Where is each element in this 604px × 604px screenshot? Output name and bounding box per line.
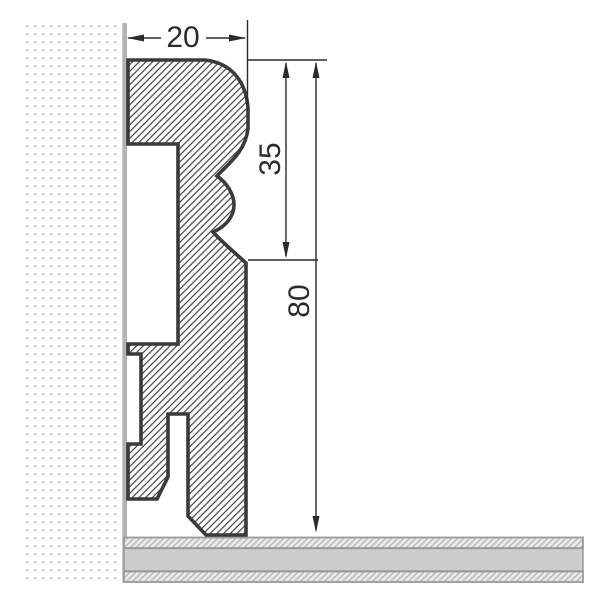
dim-arrow-down-35 [283, 242, 290, 259]
floor-middle-layer [124, 549, 583, 572]
skirting-board-cross-section [128, 60, 248, 535]
drawing-canvas: 20 35 80 [0, 0, 604, 604]
dimension-total-height: 80 [283, 62, 320, 533]
dimension-label-upper-height: 35 [254, 142, 287, 175]
dim-arrow-up-80 [313, 62, 320, 79]
dimension-top-width: 20 [127, 21, 246, 54]
floor-top-underlay-layer [124, 538, 583, 549]
wall-section [25, 23, 127, 582]
dimension-label-total-height: 80 [283, 284, 316, 317]
floor-bottom-underlay-layer [124, 572, 583, 583]
floor-section [124, 538, 583, 583]
extension-lines [248, 20, 328, 260]
dim-arrow-right [229, 35, 246, 42]
dim-arrow-up-35 [283, 62, 290, 79]
dimension-label-width: 20 [166, 21, 199, 54]
wall-plaster-texture [25, 23, 121, 581]
dim-arrow-left [127, 35, 144, 42]
dimension-upper-height: 35 [254, 62, 290, 259]
dim-arrow-down-80 [313, 516, 320, 533]
skirting-profile-technical-drawing: 20 35 80 [0, 0, 604, 604]
